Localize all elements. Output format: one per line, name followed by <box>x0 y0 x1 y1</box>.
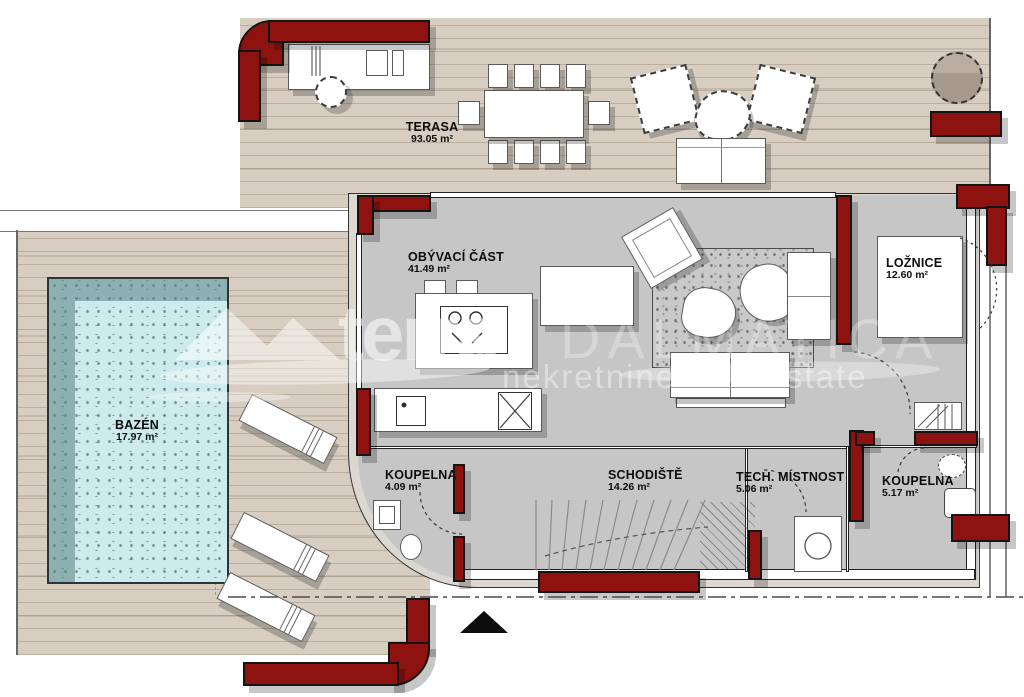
cooktop <box>440 306 508 354</box>
dining-chair <box>514 140 534 164</box>
wall-hall-horizontal <box>357 446 849 449</box>
wall-se-block <box>951 514 1010 542</box>
dishwasher <box>498 392 532 430</box>
outdoor-sink <box>366 50 388 76</box>
main-sofa-base <box>676 398 786 408</box>
room-label-schodiste: SCHODIŠTĚ 14.26 m² <box>608 468 683 494</box>
wall-bed-bottom-a <box>855 431 875 446</box>
dining-chair <box>488 140 508 164</box>
wall-bath1-lower <box>453 536 465 582</box>
outdoor-kitchen-counter <box>288 44 430 90</box>
dining-table-indoor <box>540 266 634 326</box>
room-label-koupelna-2: KOUPELNA 5.17 m² <box>882 474 954 500</box>
washer <box>794 516 842 572</box>
room-label-koupelna-1: KOUPELNA 4.09 m² <box>385 468 457 494</box>
bar-stool <box>424 280 446 294</box>
dining-table-terrace <box>484 90 584 138</box>
bed <box>877 236 963 338</box>
terrace-left-edge-line <box>16 230 18 655</box>
room-label-tech-mistnost: TECH. MÍSTNOST 5.06 m² <box>736 470 844 496</box>
floor-plan: TERASA 93.05 m² OBÝVACÍ ČÁST 41.49 m² LO… <box>0 0 1024 697</box>
dining-chair <box>566 140 586 164</box>
round-table <box>315 76 347 108</box>
room-label-bazen: BAZÉN 17.97 m² <box>94 418 180 444</box>
room-label-loznice: LOŽNICE 12.60 m² <box>886 256 942 282</box>
wall-east-vertical <box>986 206 1007 266</box>
wall-living-bedroom <box>836 195 852 345</box>
glass-wall-left <box>356 233 362 390</box>
kitchen-sink <box>396 396 426 426</box>
terrace-step-band <box>0 210 358 232</box>
wall-terrace-top <box>268 20 430 43</box>
stairs-landing-hatch <box>700 502 755 570</box>
entrance-arrow-icon <box>460 611 508 633</box>
wall-terrace-left <box>238 50 261 122</box>
wardrobe <box>914 402 962 430</box>
wall-sw-horizontal <box>243 662 399 686</box>
dining-chair <box>514 64 534 88</box>
wall-west-kitchen <box>356 388 371 456</box>
outdoor-hob <box>392 50 404 76</box>
wall-bottom <box>455 569 975 580</box>
glass-wall-top <box>430 192 836 198</box>
wall-south-center <box>538 571 700 593</box>
dining-chair <box>566 64 586 88</box>
dining-chair <box>540 64 560 88</box>
wall-bed-bottom-b <box>914 431 978 446</box>
pedestal-sink <box>400 534 422 560</box>
tree <box>931 52 983 104</box>
bar-stool <box>456 280 478 294</box>
dining-chair <box>588 101 610 125</box>
side-sofa <box>787 252 831 340</box>
room-label-terasa: TERASA 93.05 m² <box>388 120 476 146</box>
dining-chair <box>540 140 560 164</box>
room-label-obyvaci-cast: OBÝVACÍ ČÁST 41.49 m² <box>408 250 504 276</box>
main-sofa <box>670 352 790 398</box>
wall-tech-left <box>748 530 762 580</box>
dining-chair <box>488 64 508 88</box>
wall-ne-block <box>930 111 1002 137</box>
terrace-sofa <box>676 138 766 184</box>
shower <box>373 500 401 530</box>
wall-nw-vertical <box>357 195 374 235</box>
